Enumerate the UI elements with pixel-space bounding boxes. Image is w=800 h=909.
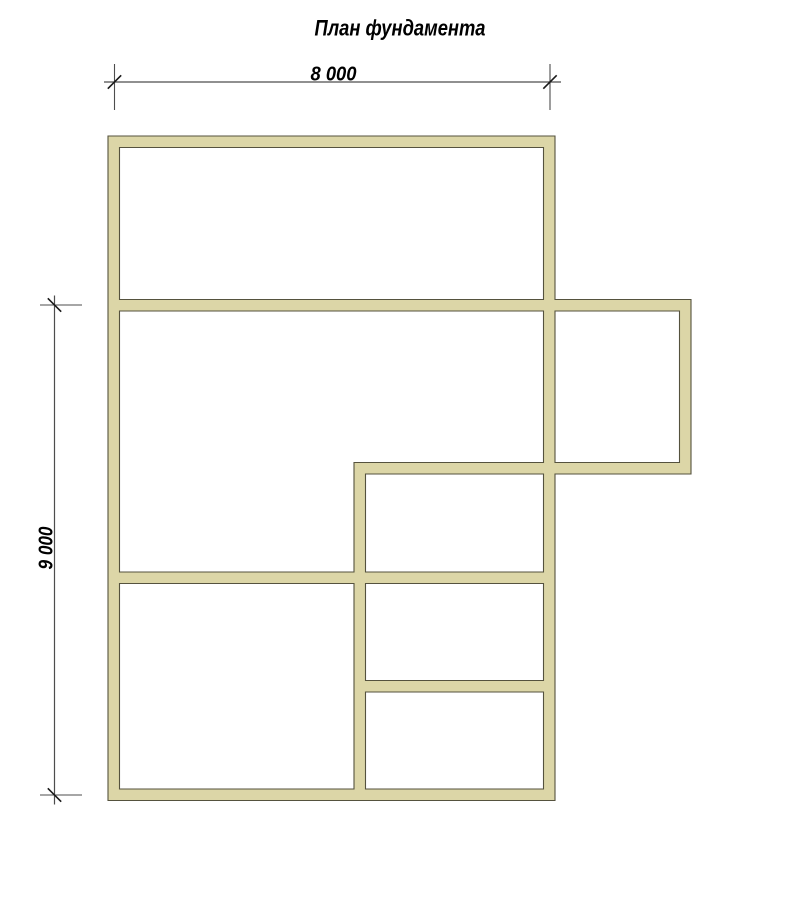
svg-text:План фундамента: План фундамента (315, 16, 486, 41)
